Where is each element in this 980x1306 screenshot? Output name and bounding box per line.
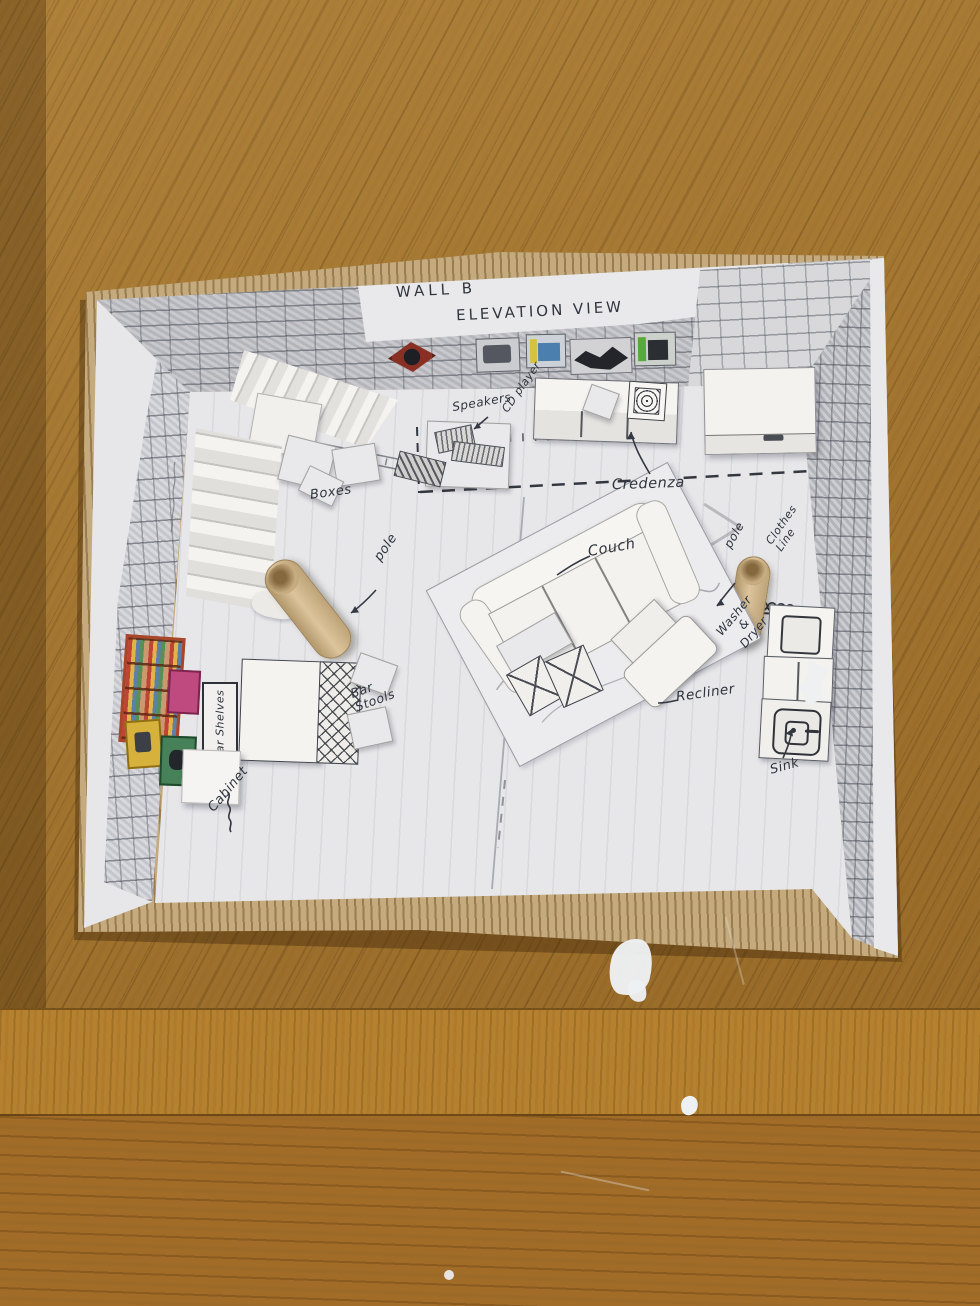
sink-basin-outline (772, 708, 822, 756)
wood-table-dark-edge (0, 0, 46, 1010)
sink-model (758, 698, 831, 762)
washer-door (780, 615, 822, 655)
credenza-label: Credenza (612, 476, 685, 494)
wood-table-middle-plank (0, 1008, 980, 1118)
record-player-drawing (627, 381, 668, 422)
sink-inner-basin (784, 720, 809, 745)
yellow-picture-sketch (134, 732, 151, 753)
wall-art-green-strip (638, 337, 646, 361)
pole-right-end-cap (738, 557, 769, 587)
left-wall-pink-picture (167, 669, 201, 715)
wall-art-frame-green (634, 332, 677, 367)
record-player-rings (633, 387, 661, 415)
wall-art-black-sketch (648, 340, 668, 360)
wall-art-blue-sketch (538, 343, 560, 361)
wall-art-frame-gray (475, 337, 520, 373)
wall-art-sketch (483, 345, 512, 364)
credenza-door-divider (580, 411, 582, 437)
left-wall-yellow-picture (124, 719, 163, 769)
wood-table-bottom-plank (0, 1114, 980, 1306)
corner-cabinet-handle (763, 435, 783, 441)
couch-cushion-divider (594, 558, 633, 629)
bar-counter-top (238, 659, 324, 764)
corner-cabinet-front (705, 433, 815, 454)
wall-art-dark-shape (574, 341, 629, 371)
wall-b-title: WALL B (396, 280, 477, 300)
white-paint-speck (444, 1270, 454, 1280)
washer-model (767, 604, 836, 661)
wall-art-frame-dark (569, 337, 632, 375)
photo-of-cardboard-room-model: Bar Shelves WALL B ELEVATION VIEW Speake… (0, 0, 980, 1306)
dryer-panel-divider (796, 662, 799, 702)
corner-cabinet-model (703, 367, 816, 455)
